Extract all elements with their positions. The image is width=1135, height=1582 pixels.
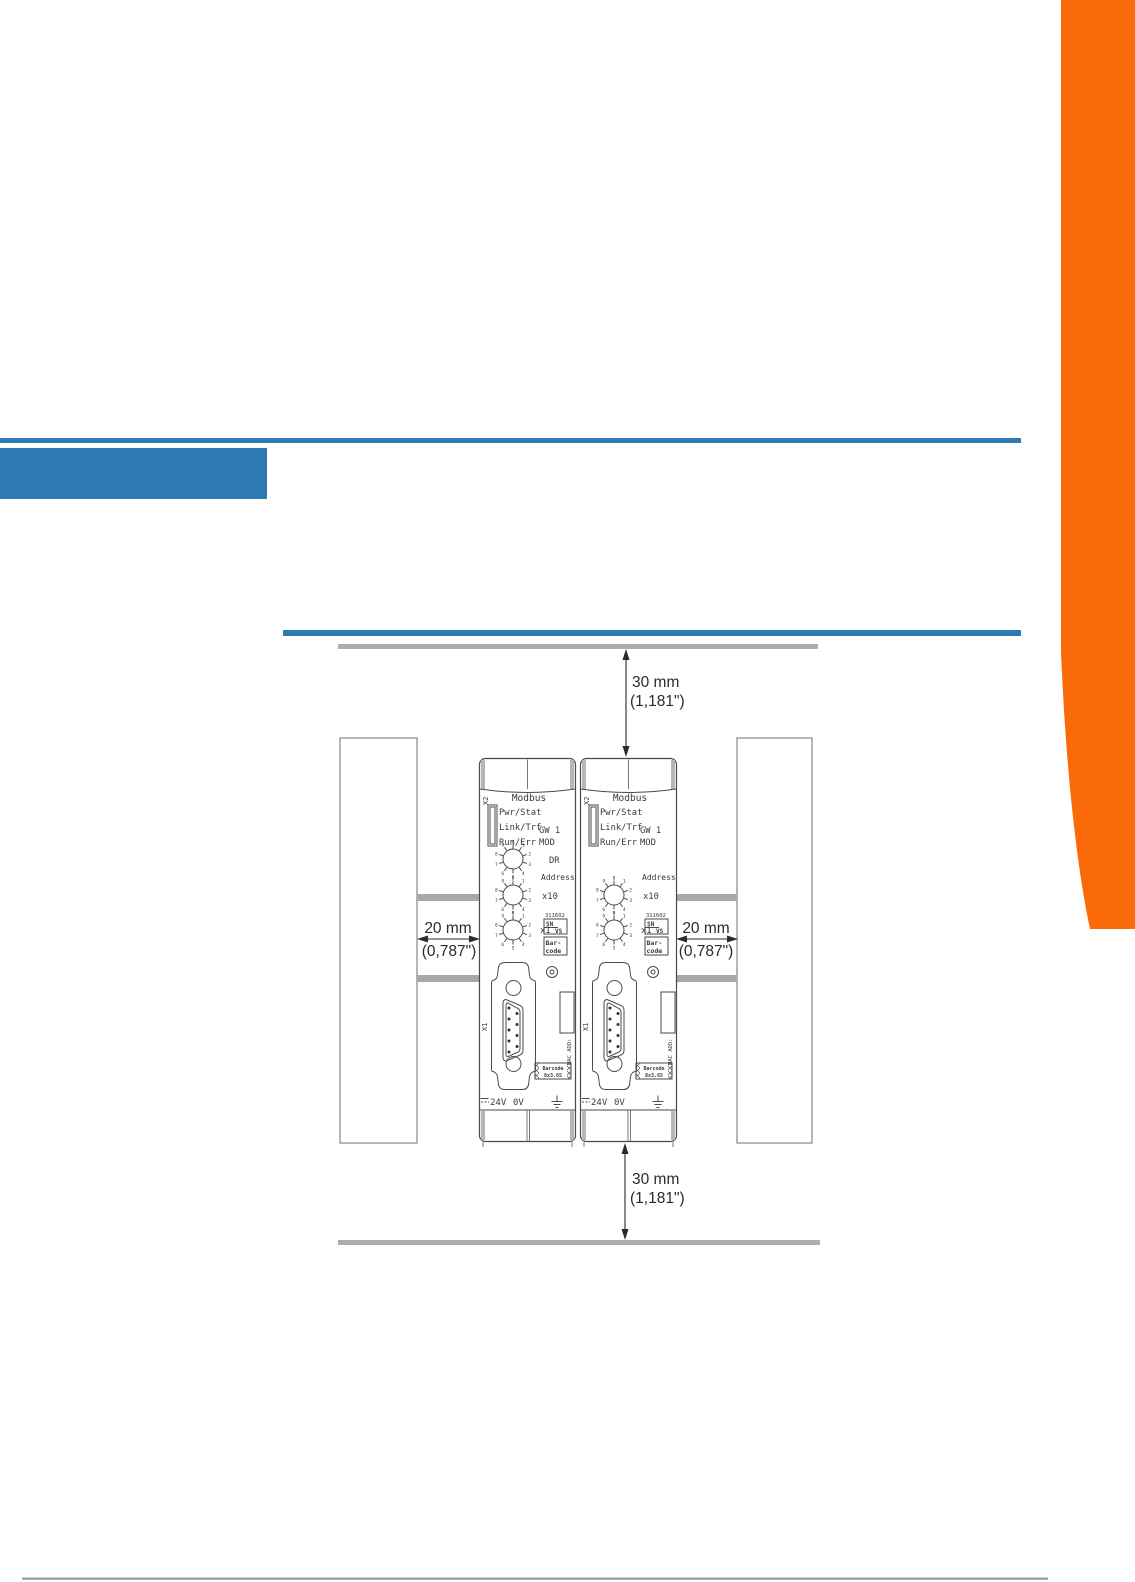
sn-label: SN [647, 921, 655, 928]
dimension-left-inch: (0,787") [422, 943, 477, 960]
port-x2-label: X2 [583, 797, 591, 805]
dimension-top-inch: (1,181") [630, 693, 685, 710]
gateway-module-right: X2 Modbus Pwr/Stat Link/Trf Run/Err GW 1… [581, 759, 677, 1148]
svg-text:0: 0 [613, 875, 616, 881]
svg-text:1: 1 [522, 879, 525, 885]
cap-shade-right [570, 760, 574, 789]
din-rail-segment [417, 975, 480, 982]
svg-text:4: 4 [522, 871, 525, 877]
svg-text:0: 0 [512, 875, 515, 881]
svg-text:9: 9 [501, 879, 504, 885]
led-label-link-trf: Link/Trf [600, 823, 642, 833]
dimension-right-inch: (0,787") [679, 943, 734, 960]
device-type-line1: GW 1 [539, 826, 560, 836]
svg-text:8: 8 [596, 922, 599, 928]
section-divider-rule [0, 438, 1021, 443]
svg-text:9: 9 [602, 879, 605, 885]
svg-text:0: 0 [512, 910, 515, 916]
din-rail-segment [676, 894, 737, 901]
vs-label: VS [656, 928, 664, 935]
dimension-top-mm: 30 mm [632, 674, 679, 691]
device-type-line2: MOD [539, 838, 555, 848]
svg-text:3: 3 [528, 933, 531, 939]
svg-text:8: 8 [495, 922, 498, 928]
dimension-right-clearance: 20 mm (0,787") [676, 920, 738, 960]
svg-text:9: 9 [602, 914, 605, 920]
svg-text:8: 8 [495, 887, 498, 893]
svg-text:2: 2 [528, 922, 531, 928]
svg-text:5: 5 [512, 945, 515, 951]
mac-address-label: MAC ADD: [567, 1039, 573, 1066]
rotary-dr-label: DR [549, 856, 560, 866]
svg-text:3: 3 [629, 933, 632, 939]
svg-text:8: 8 [495, 851, 498, 857]
manual-page: X2 Modbus Pwr/Stat Link/Trf Run/Err GW 1… [0, 0, 1135, 1582]
svg-text:1: 1 [623, 914, 626, 920]
bottom-clearance-boundary-bar [338, 1240, 820, 1245]
svg-text:4: 4 [522, 942, 525, 948]
top-clearance-boundary-bar [338, 644, 818, 649]
dimension-right-mm: 20 mm [682, 920, 729, 937]
svg-text:7: 7 [495, 862, 498, 868]
gateway-module-left: X2 Modbus Pwr/Stat Link/Trf Run/Err GW 1… [480, 759, 576, 1148]
article-number: 311602 [545, 913, 565, 919]
svg-text:1: 1 [623, 879, 626, 885]
address-label: Address [642, 873, 676, 882]
svg-text:0: 0 [613, 910, 616, 916]
power-24v-label: 24V [490, 1098, 507, 1108]
svg-text:3: 3 [629, 898, 632, 904]
barcode-line2: code [647, 947, 663, 955]
port-x2-label: X2 [482, 797, 490, 805]
svg-text:6: 6 [602, 907, 605, 913]
svg-text:1: 1 [522, 843, 525, 849]
svg-text:0: 0 [512, 839, 515, 845]
din-rail-segment [676, 975, 737, 982]
page-canvas: X2 Modbus Pwr/Stat Link/Trf Run/Err GW 1… [0, 0, 1135, 1582]
right-adjacent-device-box [737, 738, 812, 1143]
power-0v-label: 0V [513, 1098, 524, 1108]
mac-address-label: MAC ADD: [668, 1039, 674, 1066]
din-rail-segment [417, 894, 480, 901]
footer-rule [22, 1578, 1048, 1580]
mini-barcode-line2: 8x3.65 [645, 1073, 663, 1079]
svg-text:9: 9 [501, 914, 504, 920]
rotary-x10-label: x10 [542, 892, 558, 902]
sn-label: SN [546, 921, 554, 928]
dimension-top-clearance: 30 mm (1,181") [623, 649, 685, 757]
dimension-bottom-mm: 30 mm [632, 1171, 679, 1188]
power-0v-label: 0V [614, 1098, 625, 1108]
left-adjacent-device-box [340, 738, 417, 1143]
svg-text:9: 9 [501, 843, 504, 849]
section-heading-block [0, 448, 267, 499]
svg-text:6: 6 [501, 871, 504, 877]
svg-text:4: 4 [623, 907, 626, 913]
mini-barcode-line2: 8x3.65 [544, 1073, 562, 1079]
svg-text:1: 1 [522, 914, 525, 920]
svg-text:2: 2 [629, 922, 632, 928]
vs-label: VS [555, 928, 563, 935]
orange-accent-shape [1061, 0, 1135, 929]
led-label-run-err: Run/Err [600, 838, 637, 848]
address-label: Address [541, 873, 575, 882]
svg-text:7: 7 [596, 933, 599, 939]
power-24v-label: 24V [591, 1098, 608, 1108]
dimension-bottom-inch: (1,181") [630, 1190, 685, 1207]
dimension-bottom-clearance: 30 mm (1,181") [622, 1143, 685, 1240]
port-x1-label: X1 [481, 1023, 489, 1031]
cap-shade-left [481, 760, 485, 789]
device-title: Modbus [613, 793, 647, 804]
article-number: 311602 [646, 913, 666, 919]
barcode-line1: Bar- [546, 939, 562, 947]
barcode-line2: code [546, 947, 562, 955]
port-x1-label: X1 [582, 1023, 590, 1031]
svg-text:7: 7 [596, 898, 599, 904]
device-type-line1: GW 1 [640, 826, 661, 836]
barcode-line1: Bar- [647, 939, 663, 947]
dimension-left-clearance: 20 mm (0,787") [417, 920, 480, 960]
mini-barcode-line1: Barcode [542, 1066, 563, 1072]
svg-text:7: 7 [495, 933, 498, 939]
svg-text:4: 4 [522, 907, 525, 913]
svg-text:3: 3 [528, 862, 531, 868]
svg-text:8: 8 [596, 887, 599, 893]
svg-text:2: 2 [528, 887, 531, 893]
svg-text:5: 5 [613, 945, 616, 951]
svg-text:6: 6 [501, 907, 504, 913]
led-label-pwr-stat: Pwr/Stat [600, 808, 642, 818]
dimension-left-mm: 20 mm [424, 920, 471, 937]
led-label-run-err: Run/Err [499, 838, 536, 848]
mounting-clearance-diagram: X2 Modbus Pwr/Stat Link/Trf Run/Err GW 1… [338, 644, 820, 1245]
device-type-line2: MOD [640, 838, 656, 848]
svg-text:2: 2 [528, 851, 531, 857]
svg-text:6: 6 [602, 942, 605, 948]
svg-text:7: 7 [495, 898, 498, 904]
rotary-x10-label: x10 [643, 892, 659, 902]
subsection-divider-rule [283, 630, 1021, 636]
device-title: Modbus [512, 793, 546, 804]
svg-text:2: 2 [629, 887, 632, 893]
led-label-link-trf: Link/Trf [499, 823, 541, 833]
svg-text:6: 6 [501, 942, 504, 948]
svg-text:4: 4 [623, 942, 626, 948]
svg-text:3: 3 [528, 898, 531, 904]
led-label-pwr-stat: Pwr/Stat [499, 808, 541, 818]
mini-barcode-line1: Barcode [643, 1066, 664, 1072]
